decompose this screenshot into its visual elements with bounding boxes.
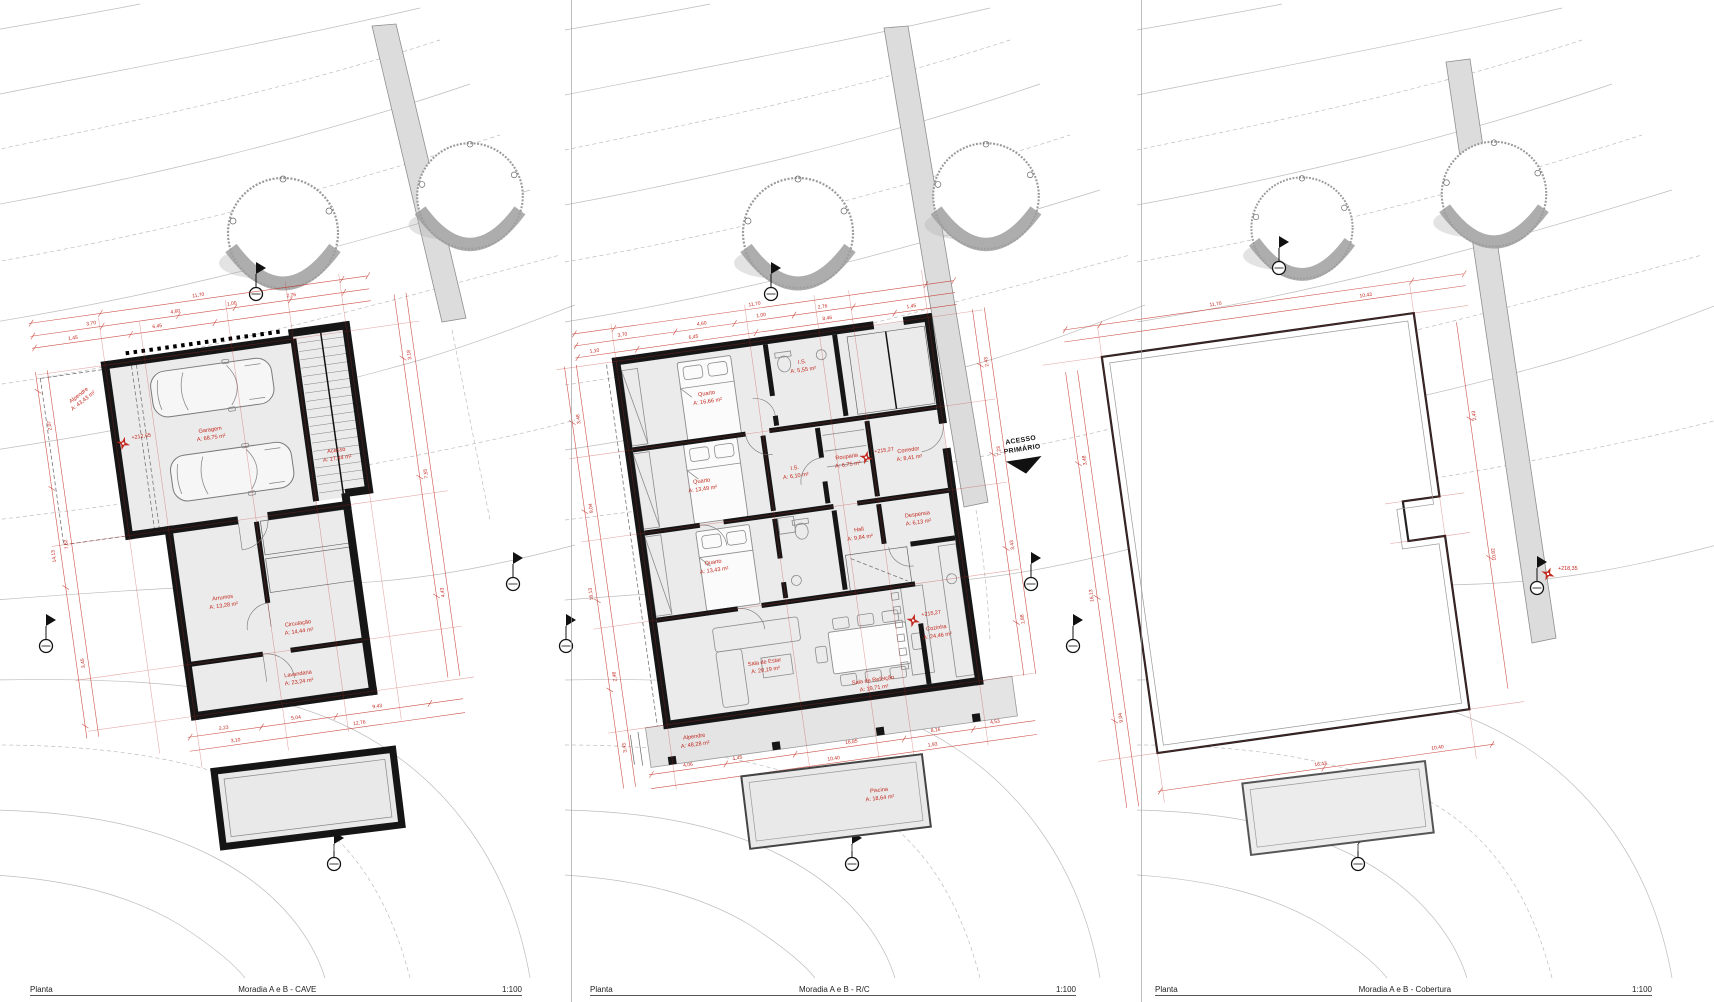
dim-label: 10,82 [1490, 547, 1498, 560]
dim-label: 11,70 [192, 292, 205, 300]
drawing-title: Moradia A e B - R/C [613, 985, 1056, 994]
rc-pool: Piscina A: 18,64 m² [741, 754, 931, 849]
dim-label: 6,45 [152, 323, 163, 330]
dim-label: 7,62 [63, 539, 70, 550]
dim-label: 3,45 [80, 658, 87, 669]
drawing-type-label: Planta [590, 985, 613, 994]
dim-label: 4,06 [683, 762, 694, 769]
cobertura-pool [1242, 761, 1433, 855]
drawing-scale: 1:100 [502, 985, 522, 994]
dim-label: 16,13 [587, 587, 595, 600]
titleblock-cave: Planta Moradia A e B - CAVE 1:100 [30, 979, 522, 996]
titleblock-cobertura: Planta Moradia A e B - Cobertura 1:100 [1155, 979, 1652, 996]
dim-label: 1,88 [1019, 614, 1026, 625]
roof-outline [1102, 313, 1470, 753]
drawing-scale: 1:100 [1056, 985, 1076, 994]
dim-label: 3,70 [617, 332, 628, 339]
dim-label: 1,93 [927, 741, 938, 748]
dim-label: 7,23 [996, 445, 1003, 456]
dim-label: 2,48 [611, 671, 618, 682]
drawing-type-label: Planta [30, 985, 53, 994]
dim-label: 3,18 [406, 349, 413, 360]
dim-label: 16,85 [845, 738, 858, 746]
room-label-is2: I.S. [790, 465, 800, 472]
dim-label: 2,76 [817, 303, 828, 310]
dim-label: 3,43 [1009, 540, 1016, 551]
level-label-cobertura: +218,35 [1558, 566, 1578, 572]
dim-label: 10,40 [827, 755, 840, 763]
dim-label: 10,40 [1431, 744, 1444, 752]
dim-label: 16,13 [1088, 589, 1096, 602]
dim-label: 3,70 [86, 320, 97, 327]
dim-label: 2,43 [1471, 410, 1478, 421]
panel-separator [1141, 0, 1142, 1002]
cave-plan: 11,70 3,70 4,60 1,00 2,76 6,45 1,45 2,07… [18, 262, 482, 784]
dim-label: 2,23 [219, 725, 230, 732]
panel-separator [571, 0, 572, 1002]
dim-label: 2,43 [983, 356, 990, 367]
plans-canvas: 11,70 3,70 4,60 1,00 2,76 6,45 1,45 2,07… [0, 0, 1714, 1002]
dim-label: 6,45 [688, 334, 699, 341]
drawing-scale: 1:100 [1632, 985, 1652, 994]
dim-label: 8,46 [822, 315, 833, 322]
dim-label: 16,43 [1314, 761, 1327, 769]
access-arrow-icon [1006, 456, 1044, 476]
dim-label: 9,04 [1118, 712, 1125, 723]
drawing-title: Moradia A e B - CAVE [53, 985, 502, 994]
panel-rc: ACESSO PRIMÁRIO [550, 4, 1145, 978]
dim-label: 3,48 [575, 414, 582, 425]
dim-label: 4,53 [990, 718, 1001, 725]
cobertura-plan: 11,70 10,43 3,48 16,13 9,04 2,43 10,82 1… [1037, 266, 1534, 811]
cave-pool [214, 749, 402, 846]
dim-label: 1,45 [68, 335, 79, 342]
dim-label: 2,76 [286, 292, 297, 299]
dim-label: 7,55 [423, 468, 430, 479]
primary-access-annotation: ACESSO PRIMÁRIO [1002, 434, 1045, 476]
drawing-sheet: 11,70 3,70 4,60 1,00 2,76 6,45 1,45 2,07… [0, 0, 1714, 1002]
panel-cave: 11,70 3,70 4,60 1,00 2,76 6,45 1,45 2,07… [0, 4, 575, 978]
drawing-title: Moradia A e B - Cobertura [1178, 985, 1632, 994]
dim-label: 4,60 [697, 320, 708, 327]
dim-label: 10,43 [1359, 292, 1372, 300]
dim-label: 2,07 [46, 420, 53, 431]
dim-label: 14,13 [50, 549, 58, 562]
drawing-type-label: Planta [1155, 985, 1178, 994]
dim-label: 11,70 [748, 301, 761, 309]
rc-plan: 11,70 3,70 4,60 1,00 2,76 1,10 6,45 8,46… [550, 262, 1045, 797]
dim-label: 1,10 [589, 348, 600, 355]
room-label-is1: I.S. [798, 359, 808, 366]
dim-label: 9,43 [372, 703, 383, 710]
dim-label: 8,16 [930, 727, 941, 734]
dim-label: 3,48 [1081, 455, 1088, 466]
dim-label: 4,43 [439, 587, 446, 598]
panel-cobertura: 11,70 10,43 3,48 16,13 9,04 2,43 10,82 1… [1037, 4, 1714, 978]
dim-label: 1,00 [756, 312, 767, 319]
titleblock-rc: Planta Moradia A e B - R/C 1:100 [590, 979, 1076, 996]
dim-label: 5,04 [291, 714, 302, 721]
dim-label: 1,45 [906, 303, 917, 310]
dim-label: 3,43 [621, 742, 628, 753]
dim-label: 3,10 [230, 737, 241, 744]
dim-label: 12,76 [353, 719, 366, 727]
dim-label: 9,04 [588, 503, 595, 514]
room-label-alpendre: Alpendre A: 43,43 m² [66, 384, 97, 412]
